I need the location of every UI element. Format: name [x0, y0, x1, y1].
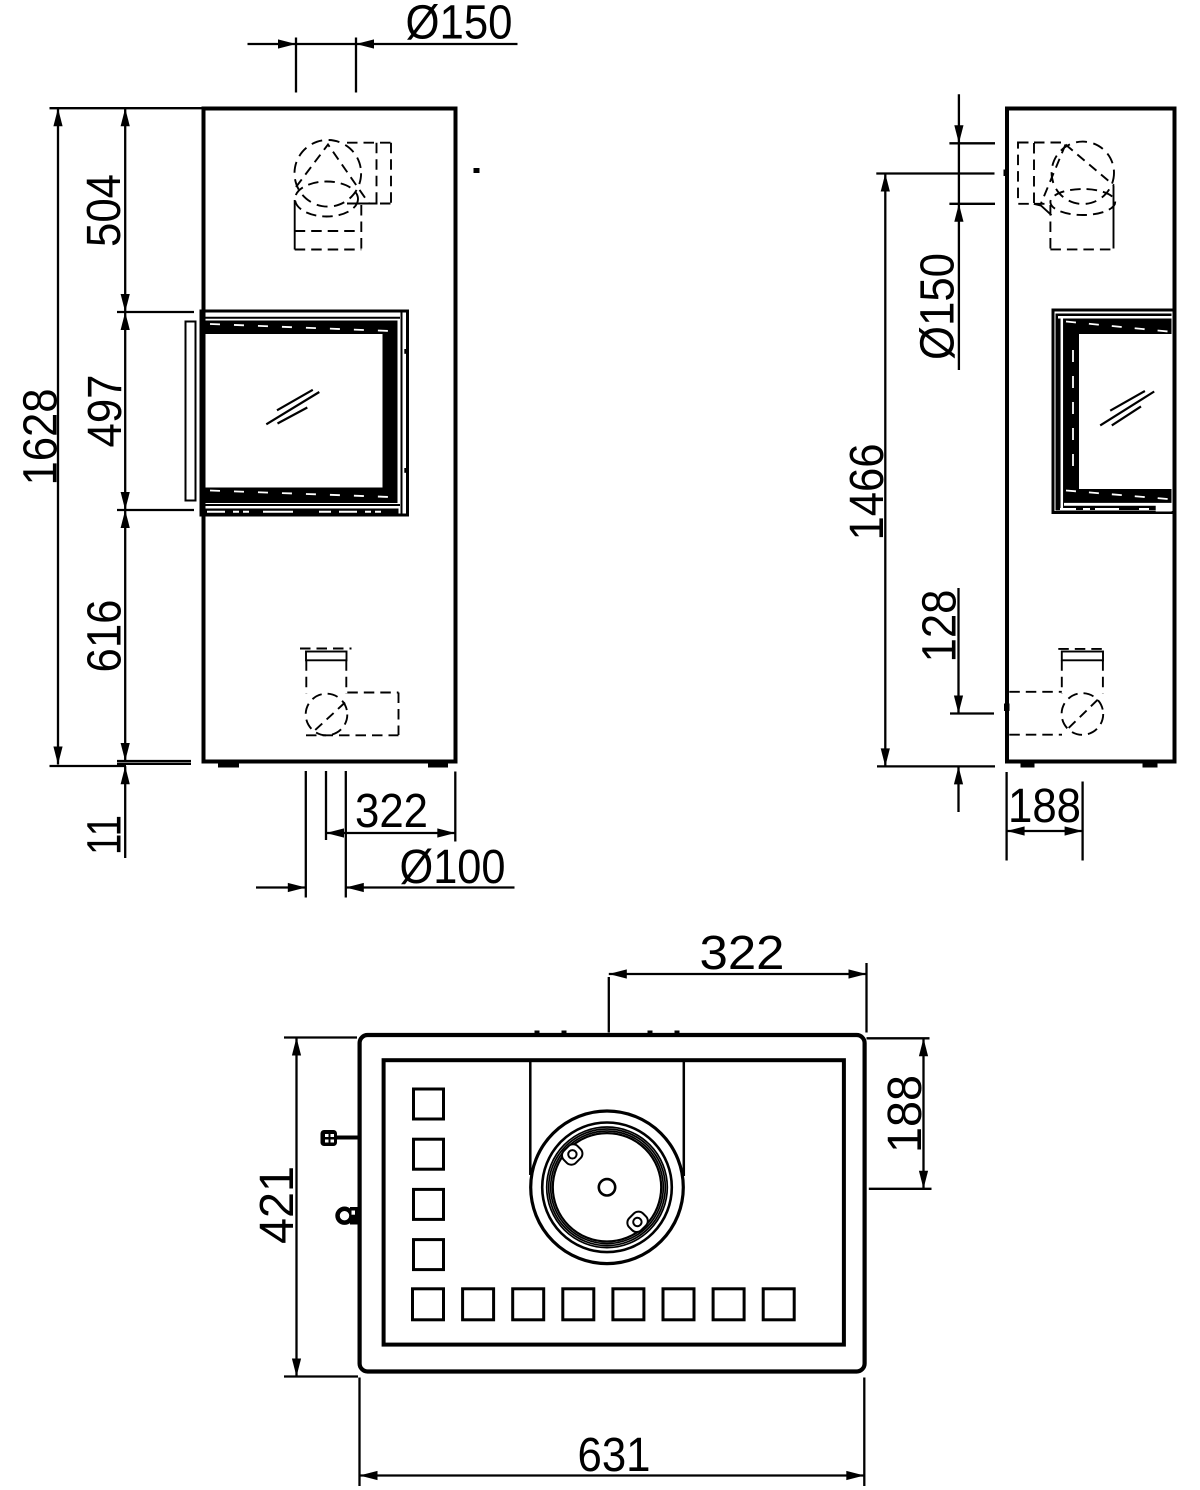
svg-text:1628: 1628 — [15, 389, 68, 486]
svg-text:188: 188 — [879, 1075, 932, 1153]
svg-text:631: 631 — [578, 1429, 651, 1482]
svg-text:322: 322 — [700, 927, 785, 980]
svg-text:504: 504 — [78, 174, 131, 247]
svg-text:Ø150: Ø150 — [406, 0, 513, 50]
svg-text:1466: 1466 — [841, 444, 894, 541]
svg-text:128: 128 — [914, 590, 967, 663]
svg-text:Ø150: Ø150 — [912, 253, 965, 360]
svg-text:11: 11 — [79, 815, 132, 855]
svg-text:Ø100: Ø100 — [400, 841, 506, 894]
svg-text:322: 322 — [355, 785, 428, 838]
svg-text:421: 421 — [251, 1166, 304, 1244]
svg-text:616: 616 — [79, 600, 132, 673]
svg-text:497: 497 — [79, 375, 132, 448]
svg-text:188: 188 — [1008, 780, 1081, 833]
